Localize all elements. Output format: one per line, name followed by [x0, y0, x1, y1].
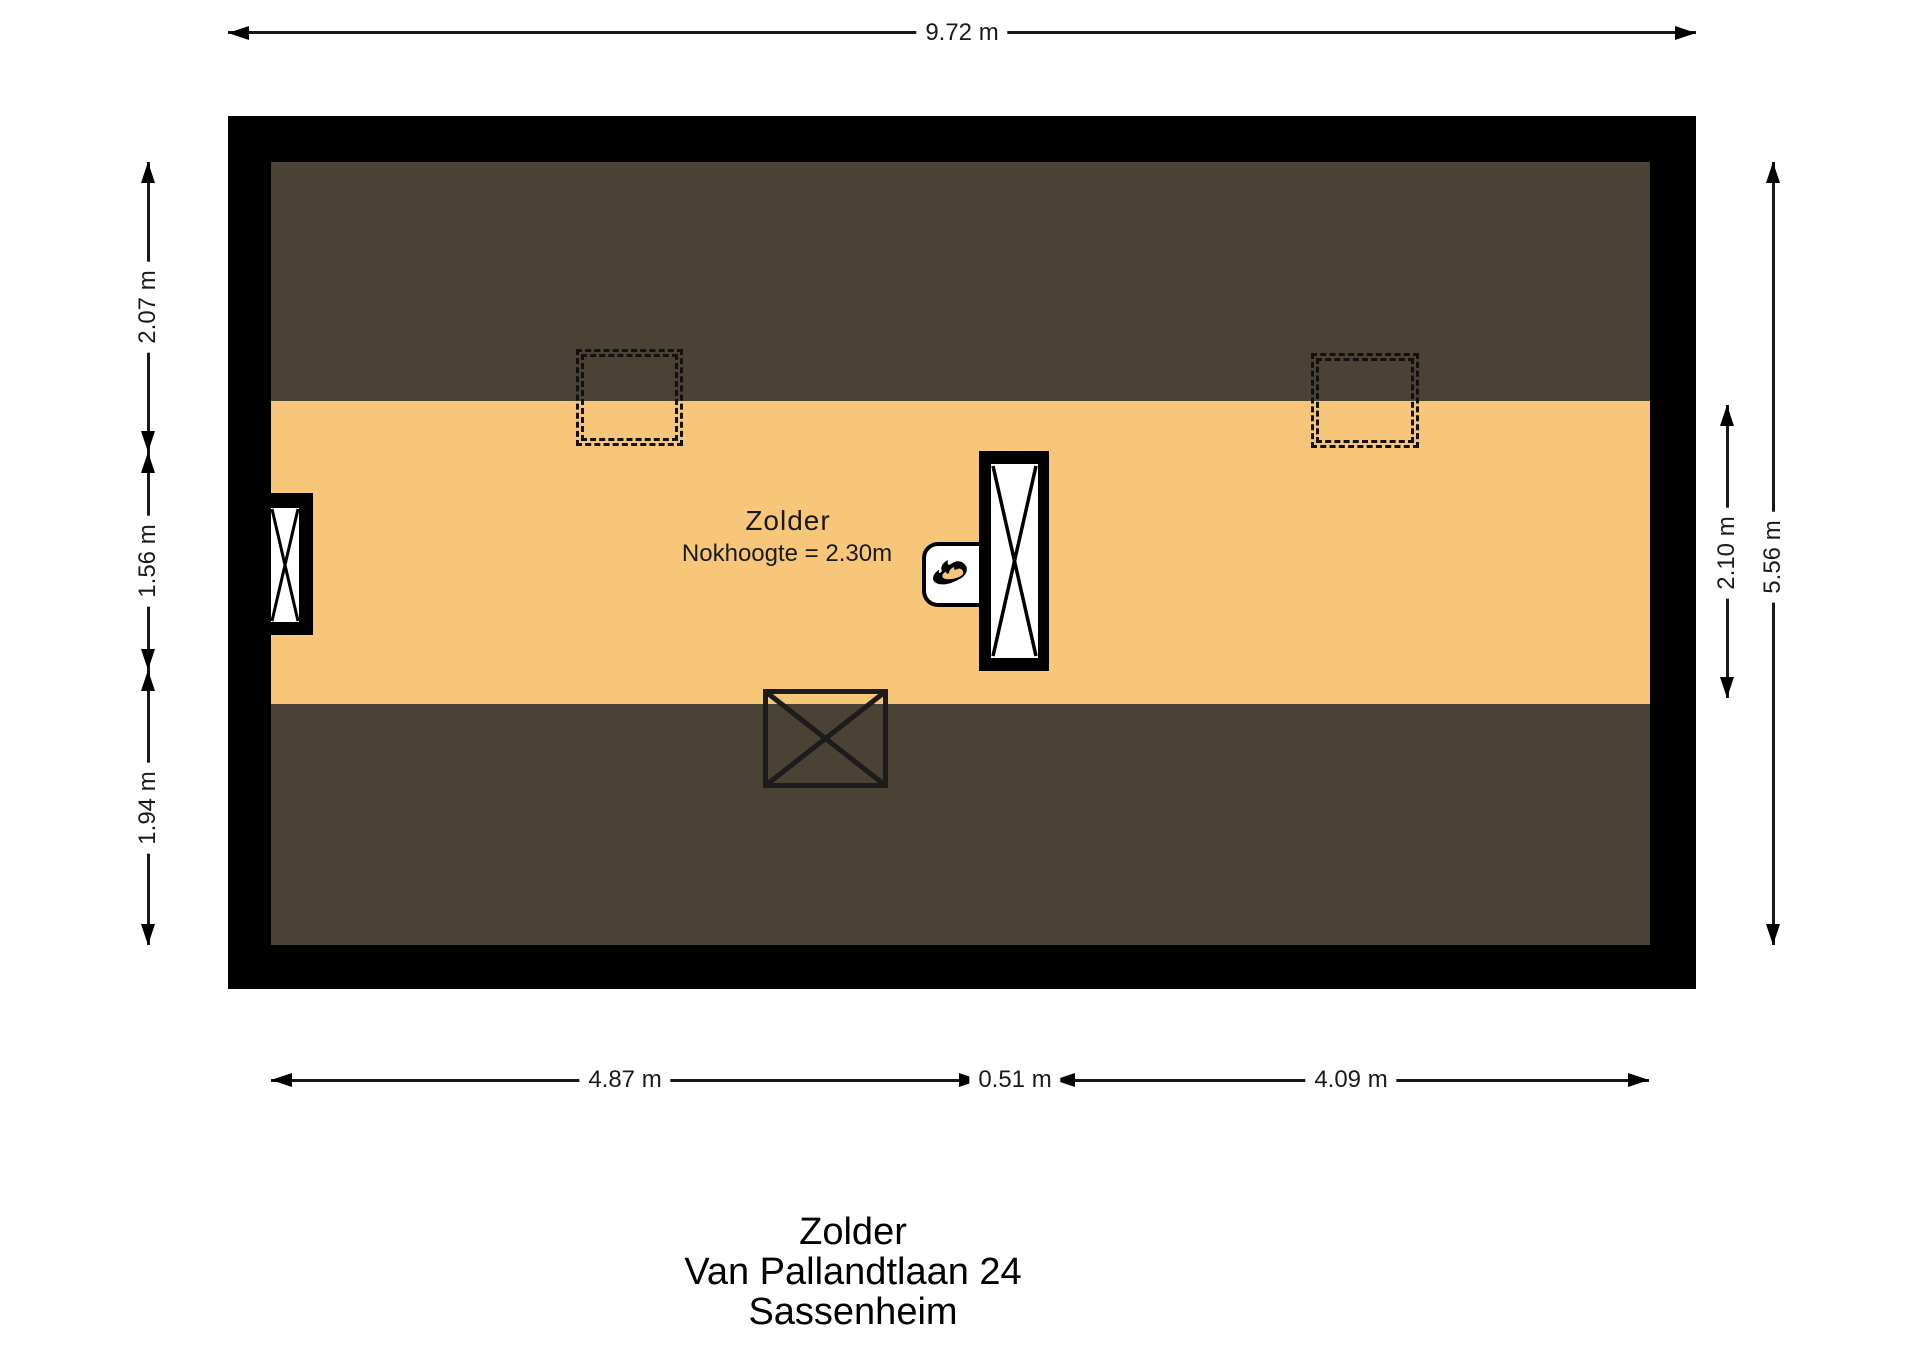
arrow-up-icon [141, 452, 155, 473]
arrow-down-icon [141, 924, 155, 945]
plan-title-block: Zolder Van Pallandtlaan 24 Sassenheim [684, 1212, 1021, 1332]
boiler-flame-icon [926, 546, 975, 603]
title-city: Sassenheim [684, 1292, 1021, 1332]
arrow-down-icon [1720, 677, 1734, 698]
window-left-glass [271, 508, 299, 622]
arrow-right-icon [1675, 26, 1696, 40]
arrow-right-icon [1628, 1073, 1649, 1087]
stairwell-opening-icon [763, 689, 888, 788]
ridge-height-label: Nokhoogte = 2.30m [682, 540, 892, 568]
dim-label-left-bottom: 1.94 m [133, 762, 163, 853]
dim-label-right-floor: 2.10 m [1712, 507, 1742, 598]
arrow-left-icon [271, 1073, 292, 1087]
dim-label-bottom-right: 4.09 m [1305, 1065, 1396, 1095]
arrow-down-icon [141, 431, 155, 452]
arrow-up-icon [141, 162, 155, 183]
room-name-label: Zolder [745, 505, 830, 537]
boiler [922, 542, 979, 607]
skylight-outline-left-icon [576, 349, 683, 446]
dim-label-bottom-left: 4.87 m [579, 1065, 670, 1095]
dim-label-left-top: 2.07 m [133, 261, 163, 352]
arrow-down-icon [1766, 924, 1780, 945]
window-cross-icon [271, 508, 299, 622]
dim-label-right-total: 5.56 m [1758, 511, 1788, 602]
title-street: Van Pallandtlaan 24 [684, 1252, 1021, 1292]
skylight-outline-right-inner [1316, 358, 1414, 443]
skylight-outline-left-inner [581, 354, 678, 441]
skylight-outline-right-icon [1311, 353, 1419, 448]
title-room: Zolder [684, 1212, 1021, 1252]
chimney-shaft-inner [991, 464, 1038, 658]
dim-label-top-width: 9.72 m [916, 18, 1007, 48]
arrow-up-icon [141, 670, 155, 691]
arrow-left-icon [228, 26, 249, 40]
dim-label-bottom-middle: 0.51 m [969, 1065, 1060, 1095]
arrow-up-icon [1766, 162, 1780, 183]
chimney-cross-icon [991, 464, 1038, 658]
arrow-up-icon [1720, 405, 1734, 426]
floor-plan-canvas: Zolder Nokhoogte = 2.30m 9.72 m 4.87 m 0… [0, 0, 1920, 1358]
dim-label-left-middle: 1.56 m [133, 515, 163, 606]
arrow-down-icon [141, 649, 155, 670]
